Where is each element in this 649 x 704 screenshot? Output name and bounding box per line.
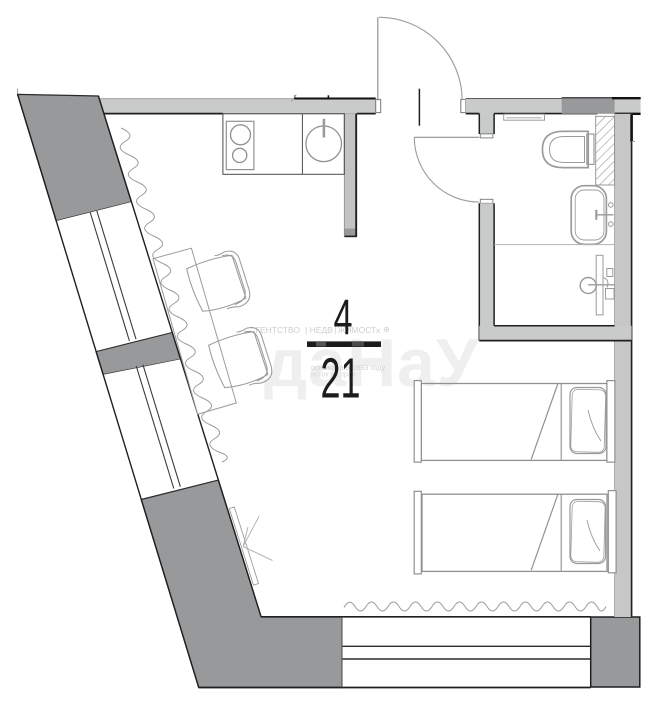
svg-text:4: 4 bbox=[334, 290, 353, 346]
svg-text:⊕: ⊕ bbox=[383, 325, 390, 334]
svg-text:ГЕНТСТВО: ГЕНТСТВО bbox=[255, 325, 300, 335]
svg-text:21: 21 bbox=[321, 347, 361, 411]
